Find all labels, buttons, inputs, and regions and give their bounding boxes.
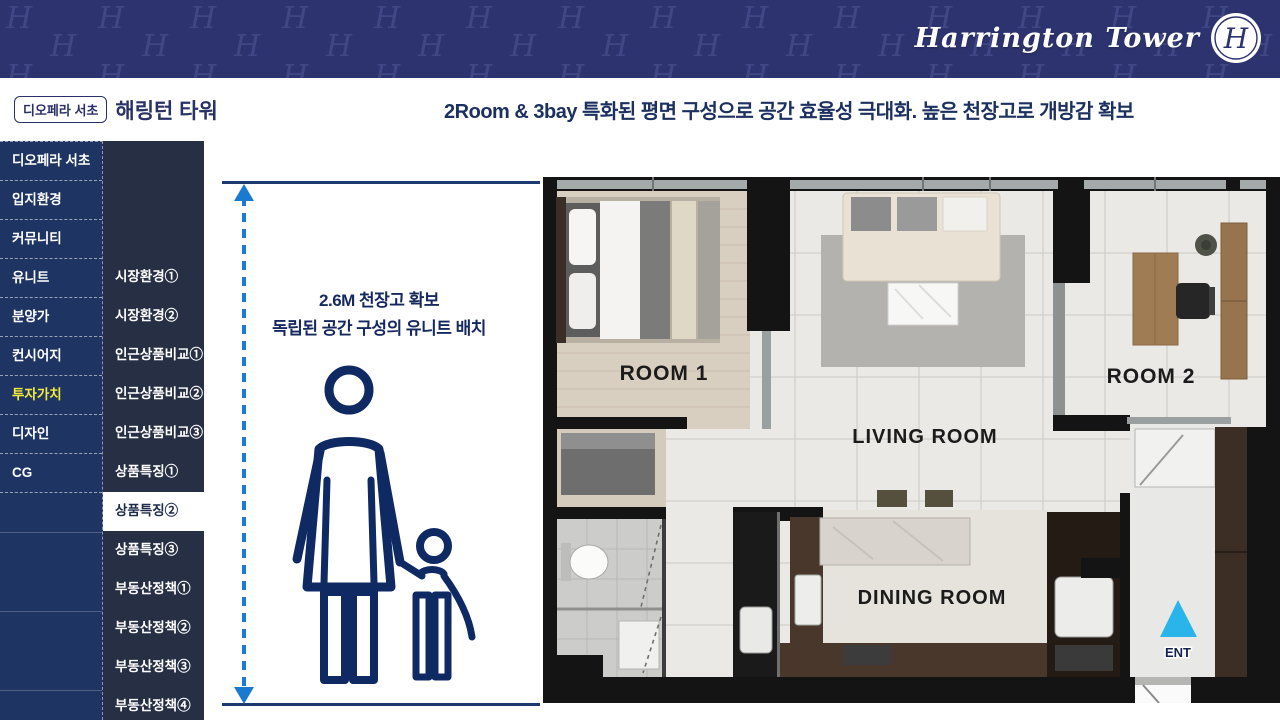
sidebar-item[interactable]: 컨시어지 bbox=[0, 337, 102, 376]
project-badge: 디오페라 서초 bbox=[14, 96, 107, 123]
brand-block: 디오페라 서초 해링턴 타워 bbox=[14, 95, 218, 125]
sidebar-subitem[interactable]: 시장환경① bbox=[103, 258, 204, 297]
floor-plan-image: ROOM 1 LIVING ROOM ROOM 2 DINING ROOM EN… bbox=[543, 177, 1280, 703]
sidebar-nav: 디오페라 서초입지환경커뮤니티유니트분양가컨시어지투자가치디자인CG 시장환경①… bbox=[0, 141, 204, 720]
room2-label: ROOM 2 bbox=[1107, 365, 1196, 388]
logo-text: Harrington Tower bbox=[915, 23, 1200, 54]
sidebar-subitem[interactable]: 상품특징③ bbox=[103, 531, 204, 570]
ceiling-caption-line2: 독립된 공간 구성의 유니트 배치 bbox=[214, 315, 544, 343]
sidebar-item[interactable]: 유니트 bbox=[0, 259, 102, 298]
ceiling-top-line bbox=[222, 181, 540, 184]
sidebar-subitem[interactable]: 인근상품비교③ bbox=[103, 414, 204, 453]
sidebar-item[interactable]: 디오페라 서초 bbox=[0, 142, 102, 181]
sidebar-item[interactable]: 분양가 bbox=[0, 298, 102, 337]
sidebar-subitem[interactable]: 상품특징② bbox=[103, 492, 204, 531]
sidebar-subitem[interactable]: 부동산정책④ bbox=[103, 687, 204, 720]
sidebar-subitem[interactable]: 부동산정책② bbox=[103, 609, 204, 648]
living-room-label: LIVING ROOM bbox=[852, 426, 997, 448]
ceiling-caption: 2.6M 천장고 확보 독립된 공간 구성의 유니트 배치 bbox=[214, 287, 544, 343]
sidebar-subitem[interactable]: 부동산정책① bbox=[103, 570, 204, 609]
subtitle-bar: 디오페라 서초 해링턴 타워 2Room & 3bay 특화된 평면 구성으로 … bbox=[0, 78, 1280, 141]
sidebar-spacer bbox=[103, 141, 204, 258]
sidebar-item[interactable]: 커뮤니티 bbox=[0, 220, 102, 259]
sidebar-subitem[interactable]: 상품특징① bbox=[103, 453, 204, 492]
dining-room-label: DINING ROOM bbox=[858, 587, 1007, 609]
logo-emblem-icon: H bbox=[1210, 12, 1262, 64]
sidebar-subitem[interactable]: 부동산정책③ bbox=[103, 648, 204, 687]
sidebar-subitem[interactable]: 시장환경② bbox=[103, 297, 204, 336]
sidebar-item[interactable]: 투자가치 bbox=[0, 376, 102, 415]
sidebar-empty-cell bbox=[0, 690, 102, 720]
ceiling-caption-line1: 2.6M 천장고 확보 bbox=[214, 287, 544, 315]
sidebar-item[interactable]: 디자인 bbox=[0, 415, 102, 454]
slide-headline: 2Room & 3bay 특화된 평면 구성으로 공간 효율성 극대화. 높은 … bbox=[218, 95, 1280, 124]
sidebar-item[interactable]: 입지환경 bbox=[0, 181, 102, 220]
room1-label: ROOM 1 bbox=[620, 362, 709, 385]
sidebar-empty-cell bbox=[0, 532, 102, 611]
sidebar-primary: 디오페라 서초입지환경커뮤니티유니트분양가컨시어지투자가치디자인CG bbox=[0, 141, 103, 720]
sidebar-empty-cell bbox=[0, 493, 102, 532]
project-title: 해링턴 타워 bbox=[115, 95, 217, 125]
svg-text:H: H bbox=[1223, 22, 1249, 55]
sidebar-secondary: 시장환경①시장환경②인근상품비교①인근상품비교②인근상품비교③상품특징①상품특징… bbox=[103, 141, 204, 720]
sidebar-item[interactable]: CG bbox=[0, 454, 102, 493]
height-arrow-icon bbox=[230, 183, 258, 705]
sidebar-subitem[interactable]: 인근상품비교① bbox=[103, 336, 204, 375]
sidebar-subitem[interactable]: 인근상품비교② bbox=[103, 375, 204, 414]
woman-and-child-icon bbox=[288, 365, 488, 691]
slide-content: 2.6M 천장고 확보 독립된 공간 구성의 유니트 배치 bbox=[204, 141, 1280, 720]
entrance-label: ENT bbox=[1165, 645, 1191, 660]
sidebar-empty-cell bbox=[0, 611, 102, 690]
page-header: H H Harrington Tower H bbox=[0, 0, 1280, 78]
floor-bottom-line bbox=[222, 703, 540, 706]
